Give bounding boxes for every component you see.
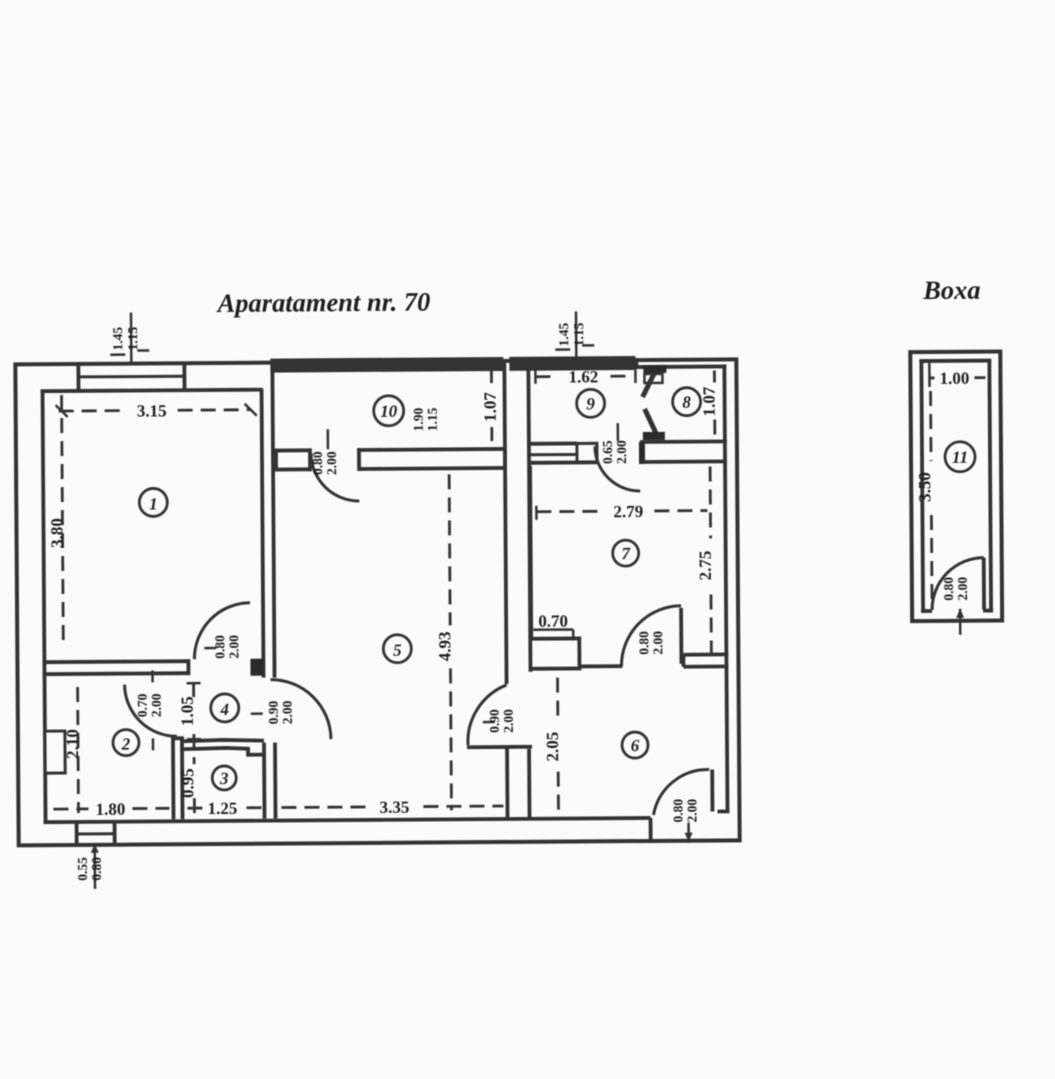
svg-text:1.90: 1.90 <box>411 407 426 431</box>
svg-text:1.62: 1.62 <box>569 367 599 386</box>
svg-text:0.90: 0.90 <box>266 700 281 724</box>
svg-text:2: 2 <box>121 735 131 754</box>
svg-text:0.80: 0.80 <box>670 799 685 823</box>
svg-text:0.90: 0.90 <box>487 709 502 733</box>
svg-text:2.00: 2.00 <box>280 700 295 724</box>
svg-text:8: 8 <box>682 393 691 412</box>
svg-text:6: 6 <box>631 736 640 755</box>
svg-text:2.05: 2.05 <box>543 732 562 762</box>
svg-text:1.45: 1.45 <box>556 322 571 346</box>
svg-text:3: 3 <box>219 769 229 788</box>
svg-text:0.80: 0.80 <box>636 631 651 655</box>
svg-text:1.00: 1.00 <box>940 369 970 388</box>
svg-text:1.07: 1.07 <box>481 392 500 422</box>
svg-text:Aparatament nr. 70: Aparatament nr. 70 <box>215 286 430 317</box>
svg-text:3.15: 3.15 <box>137 401 167 420</box>
svg-text:2.00: 2.00 <box>149 693 164 717</box>
svg-text:3.80: 3.80 <box>47 518 66 548</box>
svg-text:2.00: 2.00 <box>501 709 516 733</box>
svg-text:4.93: 4.93 <box>435 631 454 661</box>
svg-text:Boxa: Boxa <box>922 275 981 305</box>
svg-text:4: 4 <box>219 700 229 719</box>
svg-text:1.07: 1.07 <box>700 386 719 416</box>
svg-text:0.70: 0.70 <box>538 612 568 631</box>
svg-text:5: 5 <box>393 641 402 660</box>
svg-text:2.00: 2.00 <box>684 799 699 823</box>
svg-text:11: 11 <box>952 448 968 467</box>
svg-text:1.05: 1.05 <box>178 696 197 726</box>
svg-text:2.00: 2.00 <box>226 635 241 659</box>
svg-text:1.15: 1.15 <box>425 407 440 431</box>
svg-text:1.45: 1.45 <box>110 327 125 351</box>
svg-text:1.25: 1.25 <box>208 799 238 818</box>
svg-text:3.50: 3.50 <box>915 472 934 502</box>
svg-text:1.80: 1.80 <box>96 800 126 819</box>
svg-text:2.00: 2.00 <box>324 451 339 475</box>
svg-text:0.70: 0.70 <box>135 693 150 717</box>
svg-text:0.55: 0.55 <box>75 857 90 881</box>
svg-text:0.65: 0.65 <box>600 440 615 464</box>
svg-text:0.80: 0.80 <box>212 635 227 659</box>
svg-text:1.15: 1.15 <box>125 326 140 350</box>
svg-text:0.80: 0.80 <box>310 451 325 475</box>
svg-text:2.79: 2.79 <box>613 502 643 521</box>
svg-text:9: 9 <box>586 394 595 413</box>
svg-text:1: 1 <box>149 494 158 513</box>
svg-text:0.80: 0.80 <box>941 577 956 601</box>
svg-text:2.10: 2.10 <box>63 729 82 759</box>
svg-text:2.00: 2.00 <box>614 440 629 464</box>
svg-text:1.15: 1.15 <box>571 322 586 346</box>
svg-text:2.75: 2.75 <box>696 551 715 581</box>
svg-text:7: 7 <box>621 544 631 563</box>
svg-text:0.95: 0.95 <box>178 768 197 798</box>
svg-text:2.00: 2.00 <box>650 631 665 655</box>
svg-text:3.35: 3.35 <box>380 798 410 817</box>
svg-text:0.80: 0.80 <box>89 857 104 881</box>
svg-text:2.00: 2.00 <box>955 577 970 601</box>
svg-text:10: 10 <box>380 402 398 421</box>
